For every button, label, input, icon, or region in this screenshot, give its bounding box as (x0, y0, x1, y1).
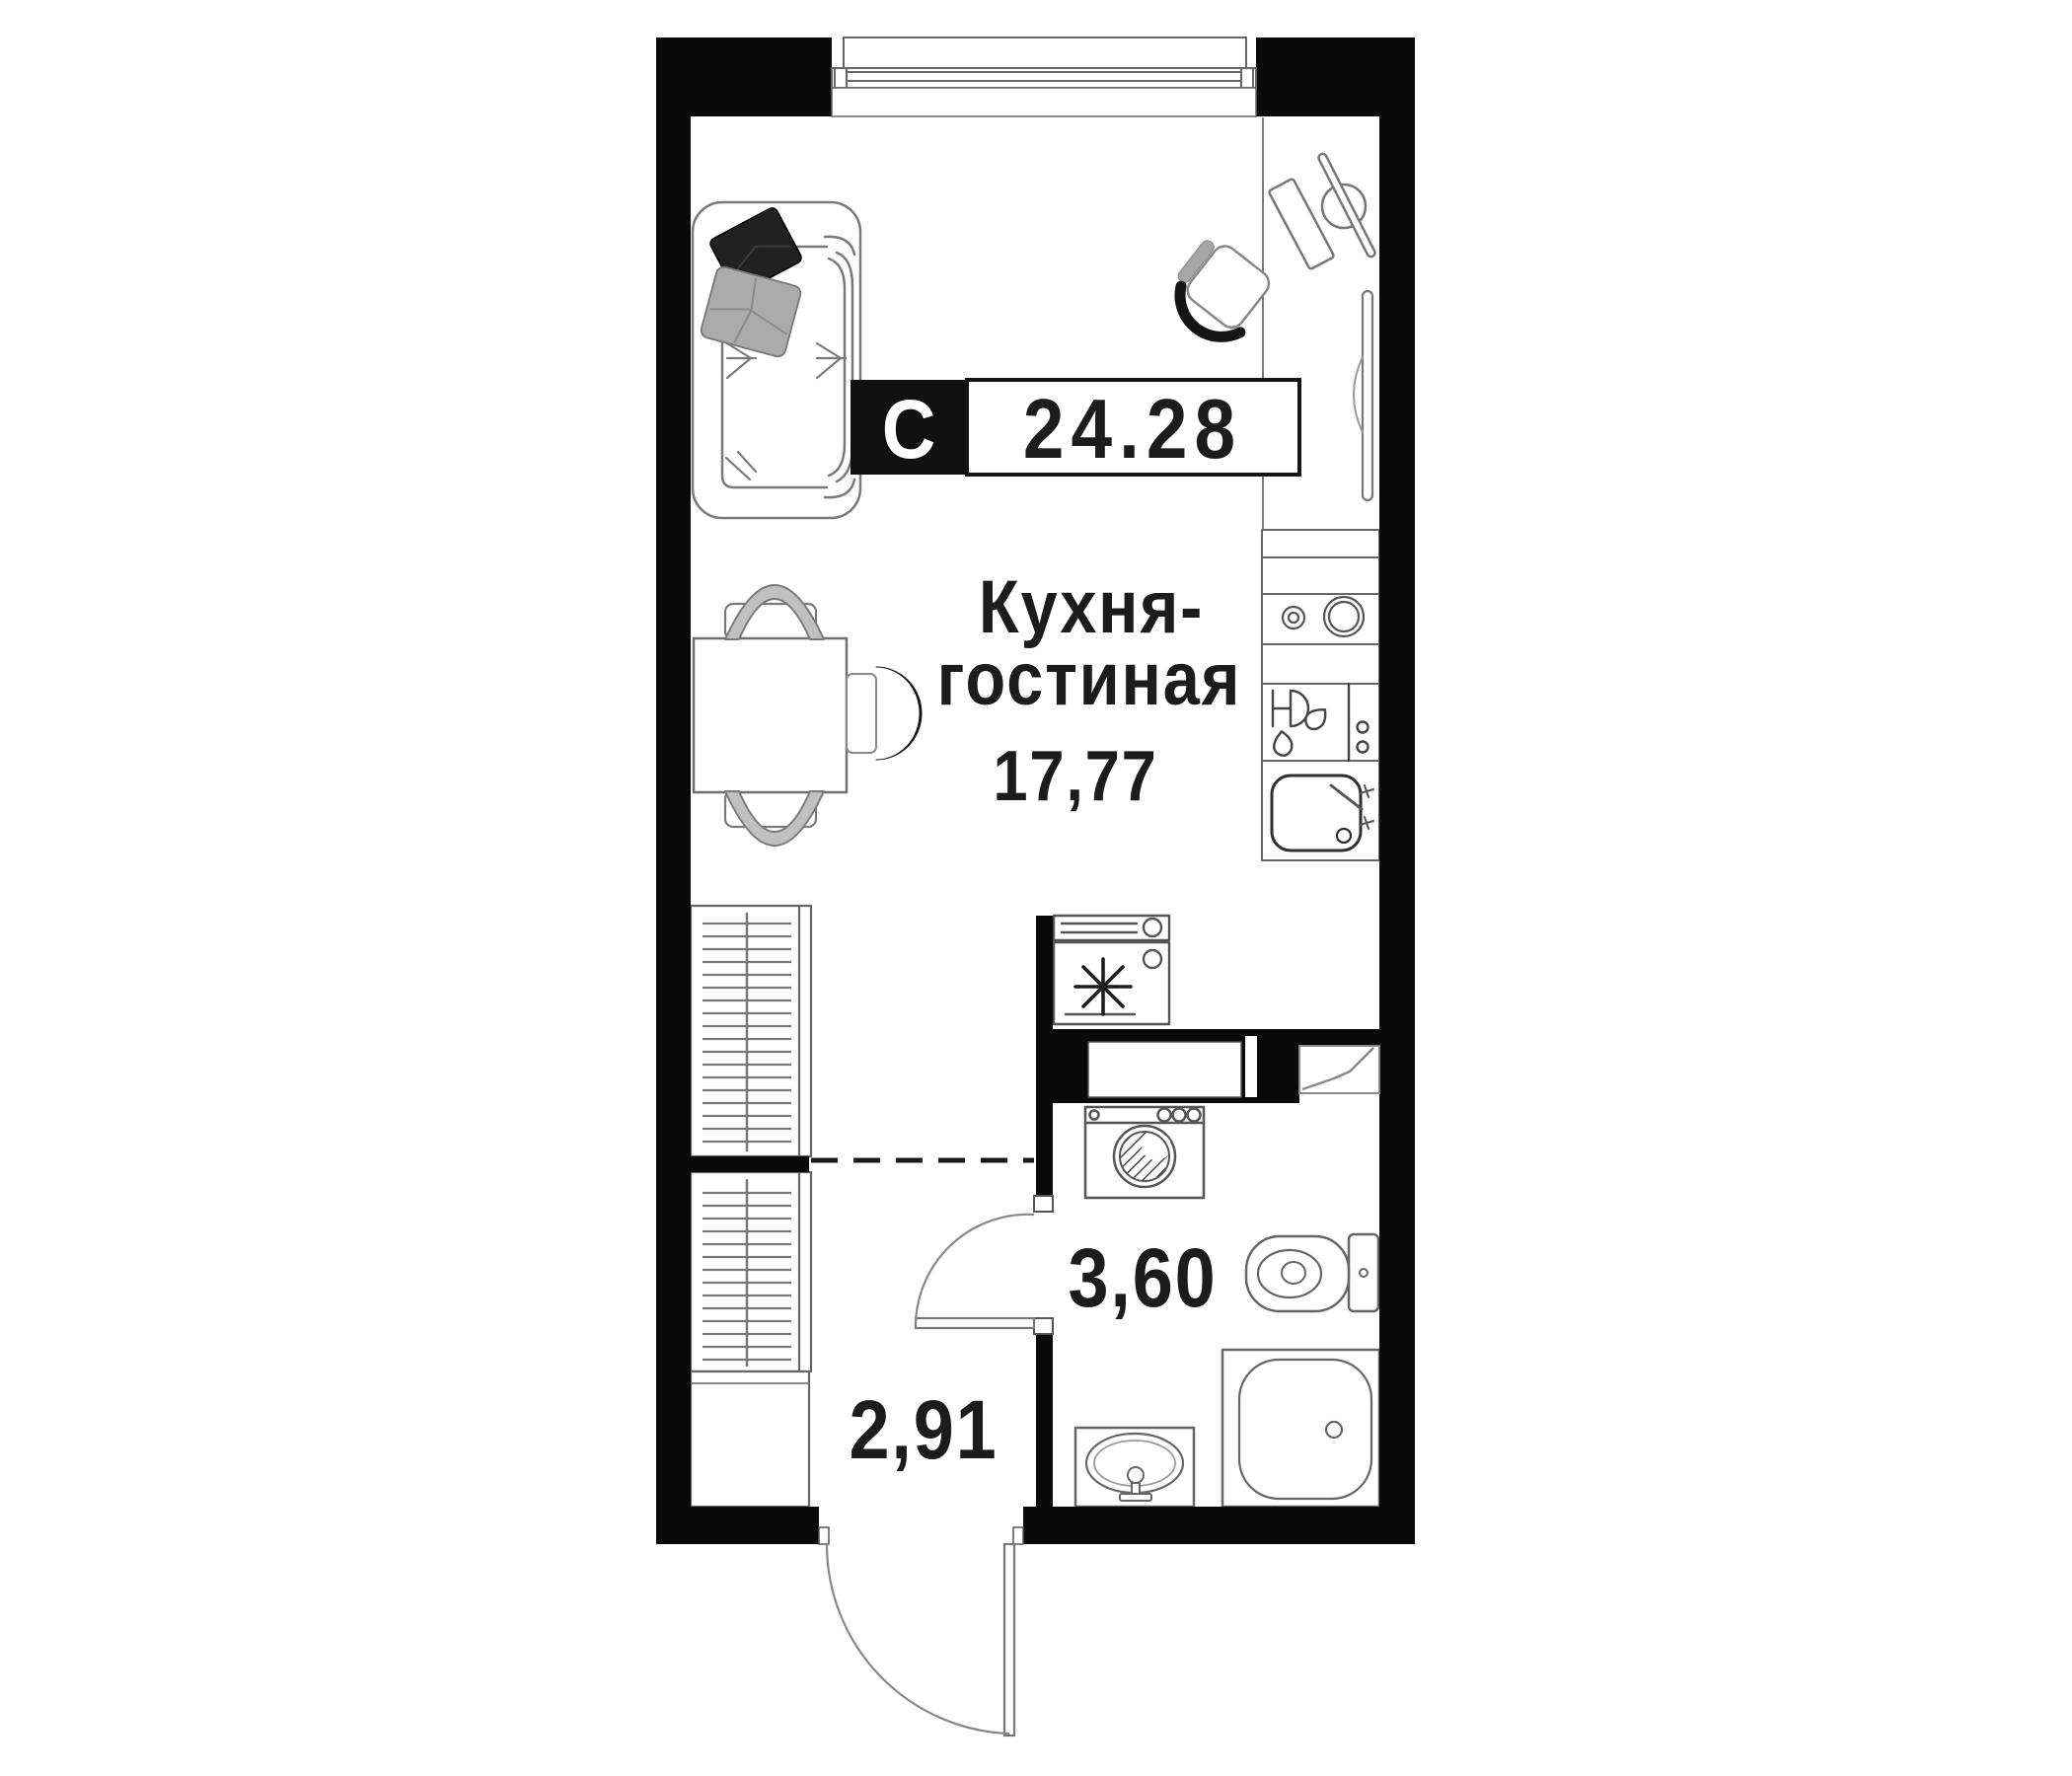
accent-chair-seat (847, 674, 876, 753)
hallway-area: 2,91 (850, 1383, 999, 1476)
washbasin-icon (1075, 1428, 1194, 1507)
bath-door-jamb-bottom (1034, 1318, 1053, 1334)
window-icon (832, 37, 1256, 116)
desk (1269, 179, 1335, 270)
entrance-door-leaf (1004, 1544, 1014, 1736)
kitchen-sink-icon (1272, 776, 1373, 851)
refrigerator-icon (1054, 942, 1169, 1024)
kitchen-living-area: 17,77 (993, 737, 1157, 816)
kitchen-living-label-line2: гостиная (937, 637, 1242, 721)
bathroom-area: 3,60 (1069, 1231, 1218, 1324)
entry-jamb-left (819, 1527, 829, 1544)
wall-slot (1245, 1036, 1257, 1097)
entrance-door-arc (827, 1544, 1009, 1734)
wardrobe-upper (691, 906, 811, 1156)
snowflake-icon (1075, 959, 1131, 1014)
wall-bottom-right (1023, 1507, 1415, 1544)
mirror-panel-arc (1354, 357, 1363, 432)
dining-table (694, 638, 847, 792)
desk-chair (1158, 232, 1278, 351)
badge-total-area: 24.28 (1023, 383, 1242, 476)
washing-machine-icon (1085, 1107, 1204, 1198)
wall-right (1379, 37, 1415, 1544)
bathroom-door-leaf (916, 1318, 1034, 1328)
appliance-box (1054, 916, 1169, 940)
floor-plan-canvas: С 24.28 Кухня- гостиная 17,77 3,60 2,91 (0, 0, 2072, 1776)
wall-interior-vertical-lower (1036, 1334, 1053, 1507)
entry-jamb-right (1013, 1527, 1023, 1544)
apartment-badge: С 24.28 (851, 380, 1299, 476)
bathroom-door-arc (916, 1215, 1034, 1323)
entrance-door (827, 1544, 1014, 1736)
badge-type-label: С (882, 383, 936, 476)
mirror-panel (1363, 291, 1372, 500)
bathtub-icon (1222, 1350, 1379, 1507)
wall-bottom-left (656, 1507, 819, 1544)
storage-box (691, 1371, 809, 1507)
bath-door-jamb-top (1034, 1196, 1053, 1212)
vent-niche (1299, 1046, 1379, 1093)
duct-niche (1088, 1042, 1241, 1097)
accent-chair-back (876, 667, 922, 760)
floor-plan: С 24.28 Кухня- гостиная 17,77 3,60 2,91 (0, 0, 2072, 1776)
bathroom-door (916, 1215, 1034, 1328)
wall-wardrobe-stub (691, 1156, 809, 1172)
wall-left (656, 37, 691, 1544)
wall-bathroom-top-strip (1299, 1029, 1379, 1046)
wardrobe-lower (691, 1172, 811, 1371)
toilet-icon (1246, 1234, 1378, 1311)
